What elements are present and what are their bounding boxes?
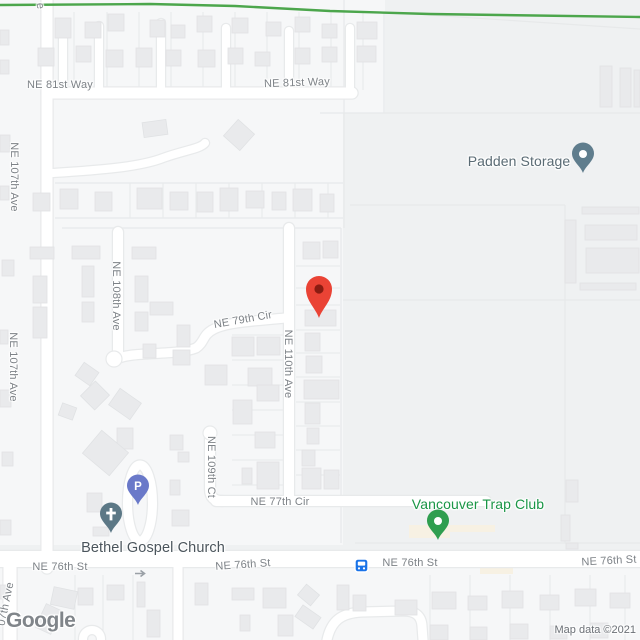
- poi-label-church[interactable]: Bethel Gospel Church: [81, 540, 225, 556]
- building: [0, 390, 11, 407]
- building: [322, 24, 337, 38]
- building: [197, 16, 212, 32]
- building: [255, 432, 275, 448]
- poi-pin-padden[interactable]: [571, 142, 595, 180]
- building: [468, 596, 487, 610]
- building: [502, 591, 523, 608]
- building: [78, 588, 93, 605]
- building: [240, 615, 250, 631]
- building: [586, 248, 639, 273]
- building: [171, 25, 185, 38]
- building: [306, 356, 322, 373]
- building: [295, 48, 310, 64]
- building: [320, 194, 334, 212]
- building: [620, 68, 631, 107]
- building: [0, 60, 9, 74]
- building: [303, 242, 320, 259]
- building: [395, 600, 417, 615]
- building: [228, 48, 243, 64]
- building: [323, 241, 338, 258]
- building: [0, 186, 9, 200]
- building: [248, 368, 272, 386]
- building: [575, 589, 596, 606]
- building: [232, 18, 248, 33]
- building: [302, 468, 321, 489]
- building: [198, 50, 215, 67]
- building: [324, 470, 339, 489]
- building: [143, 344, 156, 358]
- building: [302, 450, 315, 466]
- building: [580, 283, 636, 290]
- building: [278, 615, 293, 636]
- building: [295, 17, 310, 32]
- oneway-arrow-icon: [134, 565, 147, 583]
- building: [178, 452, 189, 462]
- building: [147, 610, 160, 637]
- building: [107, 585, 124, 600]
- building: [72, 246, 100, 259]
- building: [137, 188, 162, 209]
- building: [82, 302, 94, 322]
- building: [304, 380, 339, 399]
- building: [232, 337, 254, 356]
- building: [634, 70, 640, 107]
- building: [137, 582, 145, 607]
- building: [76, 46, 91, 62]
- building: [0, 585, 9, 599]
- building: [272, 192, 286, 210]
- building: [85, 22, 101, 38]
- building: [0, 330, 8, 344]
- building: [255, 52, 270, 66]
- building: [246, 191, 264, 208]
- building: [242, 468, 252, 484]
- building: [353, 595, 366, 611]
- building: [33, 307, 47, 338]
- building: [305, 403, 320, 424]
- building: [257, 462, 279, 489]
- building: [166, 50, 181, 66]
- building: [430, 625, 448, 640]
- bus-stop-icon[interactable]: [354, 558, 369, 578]
- building: [2, 452, 13, 466]
- building: [357, 46, 376, 62]
- building: [195, 583, 208, 605]
- map-copyright: Map data ©2021: [555, 624, 637, 636]
- building: [172, 510, 189, 526]
- building: [232, 588, 254, 600]
- building: [585, 225, 637, 240]
- building: [322, 47, 337, 62]
- poi-pin-church[interactable]: [99, 502, 123, 540]
- building: [307, 428, 319, 444]
- building: [233, 400, 252, 424]
- building: [0, 520, 11, 535]
- parking-pin[interactable]: P: [126, 474, 150, 512]
- svg-text:P: P: [134, 481, 142, 493]
- building: [561, 515, 570, 541]
- building: [60, 189, 78, 209]
- building: [82, 266, 94, 297]
- google-logo[interactable]: Google: [6, 609, 75, 633]
- building: [106, 50, 123, 67]
- poi-pin-trap[interactable]: [426, 509, 450, 547]
- building: [173, 350, 190, 365]
- building: [135, 312, 148, 331]
- building: [566, 480, 578, 502]
- building: [540, 595, 559, 610]
- place-marker-pin[interactable]: [305, 271, 333, 325]
- building: [263, 588, 286, 608]
- building: [470, 627, 487, 640]
- building: [566, 543, 578, 549]
- building: [170, 480, 180, 495]
- building: [95, 192, 112, 211]
- building: [170, 435, 183, 450]
- building: [108, 14, 124, 31]
- building: [432, 592, 456, 609]
- building: [565, 220, 576, 283]
- building: [510, 624, 528, 639]
- building: [205, 365, 227, 385]
- building: [170, 192, 188, 210]
- building: [197, 192, 213, 212]
- building: [337, 585, 349, 610]
- building: [266, 22, 281, 36]
- building: [582, 207, 639, 214]
- building: [257, 385, 279, 401]
- building: [150, 302, 173, 315]
- building: [33, 276, 47, 303]
- building: [150, 20, 165, 37]
- poi-label-padden[interactable]: Padden Storage: [468, 153, 571, 169]
- building: [293, 189, 312, 211]
- building: [30, 247, 54, 259]
- building: [2, 260, 14, 276]
- building: [135, 276, 148, 302]
- building: [33, 193, 50, 211]
- building: [177, 325, 190, 347]
- building: [136, 48, 152, 67]
- building: [305, 333, 320, 351]
- building: [257, 337, 280, 355]
- building: [132, 247, 156, 259]
- building: [0, 30, 9, 45]
- building: [610, 593, 630, 608]
- building: [600, 66, 612, 107]
- building: [357, 22, 377, 39]
- building: [142, 119, 168, 137]
- building: [55, 18, 71, 38]
- building: [220, 188, 238, 211]
- building: [38, 48, 54, 66]
- building: [0, 135, 10, 152]
- map-canvas[interactable]: NE 81st WayNE 81st WayNE 107th AveNE 107…: [0, 0, 640, 640]
